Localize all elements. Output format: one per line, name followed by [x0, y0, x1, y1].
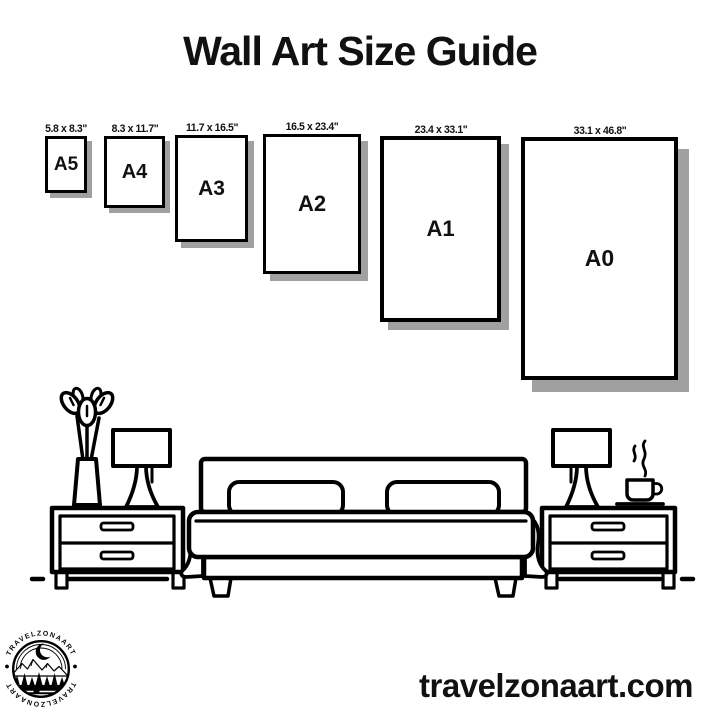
mattress	[189, 512, 533, 557]
paper-a0-dimensions: 33.1 x 46.8"	[573, 125, 626, 137]
nightstand-right-icon	[542, 508, 675, 588]
badge-dot	[5, 665, 9, 669]
steam	[643, 441, 646, 476]
paper-a3-dimensions: 11.7 x 16.5"	[185, 122, 237, 134]
website-url: travelzonaart.com	[398, 667, 714, 705]
brand-logo-badge: TRAVELZONAART TRAVELZONAART	[0, 627, 83, 711]
paper-a2-label: A2	[298, 191, 326, 217]
paper-a5-dimensions: 5.8 x 8.3"	[45, 123, 87, 135]
paper-a5-label: A5	[54, 154, 78, 176]
table-lamp-right-icon	[553, 430, 610, 507]
bed-leg	[210, 578, 231, 596]
potted-plant-icon	[58, 387, 117, 505]
paper-a5: 5.8 x 8.3" A5	[45, 136, 87, 193]
paper-a0: 33.1 x 46.8" A0	[521, 137, 678, 380]
paper-a3-label: A3	[198, 177, 225, 201]
double-bed-icon	[181, 459, 547, 596]
paper-a0-label: A0	[585, 245, 614, 272]
vase	[74, 459, 100, 505]
paper-a4: 8.3 x 11.7" A4	[104, 136, 165, 208]
bedroom-illustration	[0, 380, 720, 610]
badge-dot	[73, 665, 77, 669]
paper-a1: 23.4 x 33.1" A1	[380, 136, 501, 322]
paper-a4-dimensions: 8.3 x 11.7"	[111, 123, 158, 135]
page-title: Wall Art Size Guide	[0, 28, 720, 75]
paper-a2: 16.5 x 23.4" A2	[263, 134, 361, 274]
paper-a2-dimensions: 16.5 x 23.4"	[286, 121, 339, 133]
paper-a1-label: A1	[426, 216, 454, 242]
steam	[634, 446, 636, 461]
table-lamp-left-icon	[113, 430, 170, 507]
bed-leg	[495, 578, 516, 596]
bed-base	[204, 557, 522, 578]
paper-a1-dimensions: 23.4 x 33.1"	[414, 124, 467, 136]
nightstand-left-icon	[52, 508, 184, 588]
paper-a3: 11.7 x 16.5" A3	[175, 135, 248, 242]
paper-a4-label: A4	[122, 161, 148, 184]
coffee-cup-icon	[617, 441, 663, 504]
wall-art-size-guide-page: Wall Art Size Guide 5.8 x 8.3" A5 8.3 x …	[0, 0, 720, 720]
